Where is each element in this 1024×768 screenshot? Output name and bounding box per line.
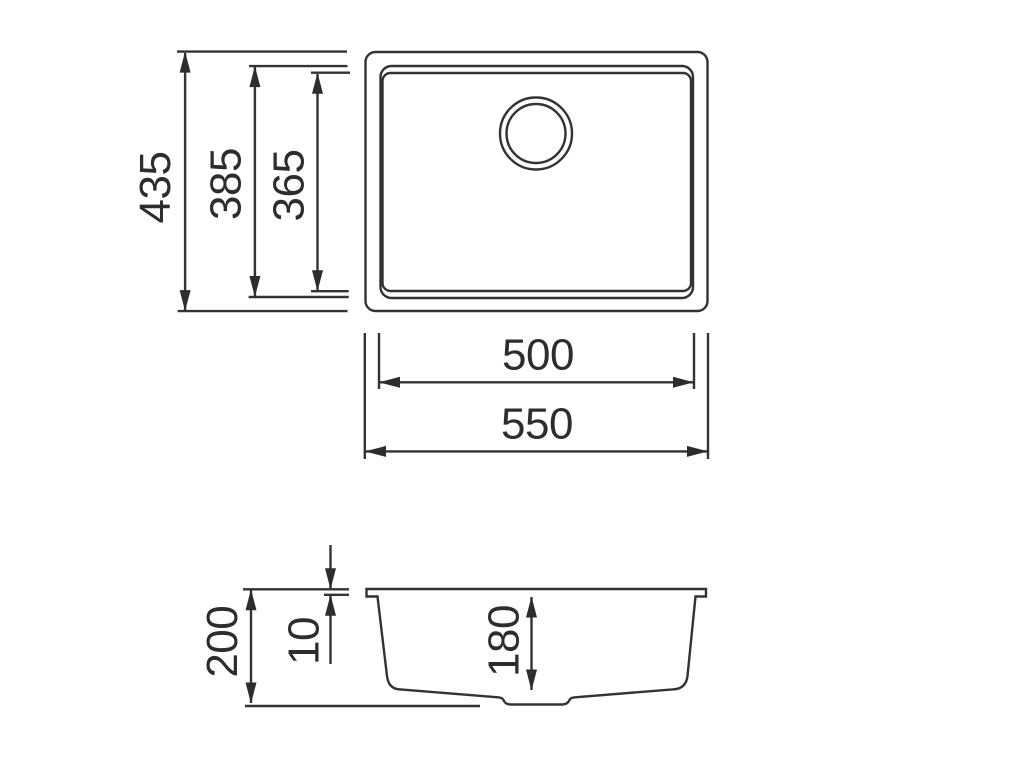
svg-text:10: 10 bbox=[280, 617, 329, 665]
svg-text:200: 200 bbox=[198, 606, 247, 678]
svg-text:180: 180 bbox=[480, 605, 529, 677]
svg-text:550: 550 bbox=[501, 400, 573, 449]
svg-text:435: 435 bbox=[131, 152, 180, 224]
svg-text:365: 365 bbox=[265, 150, 314, 222]
svg-text:500: 500 bbox=[502, 331, 574, 380]
svg-text:385: 385 bbox=[202, 148, 251, 220]
